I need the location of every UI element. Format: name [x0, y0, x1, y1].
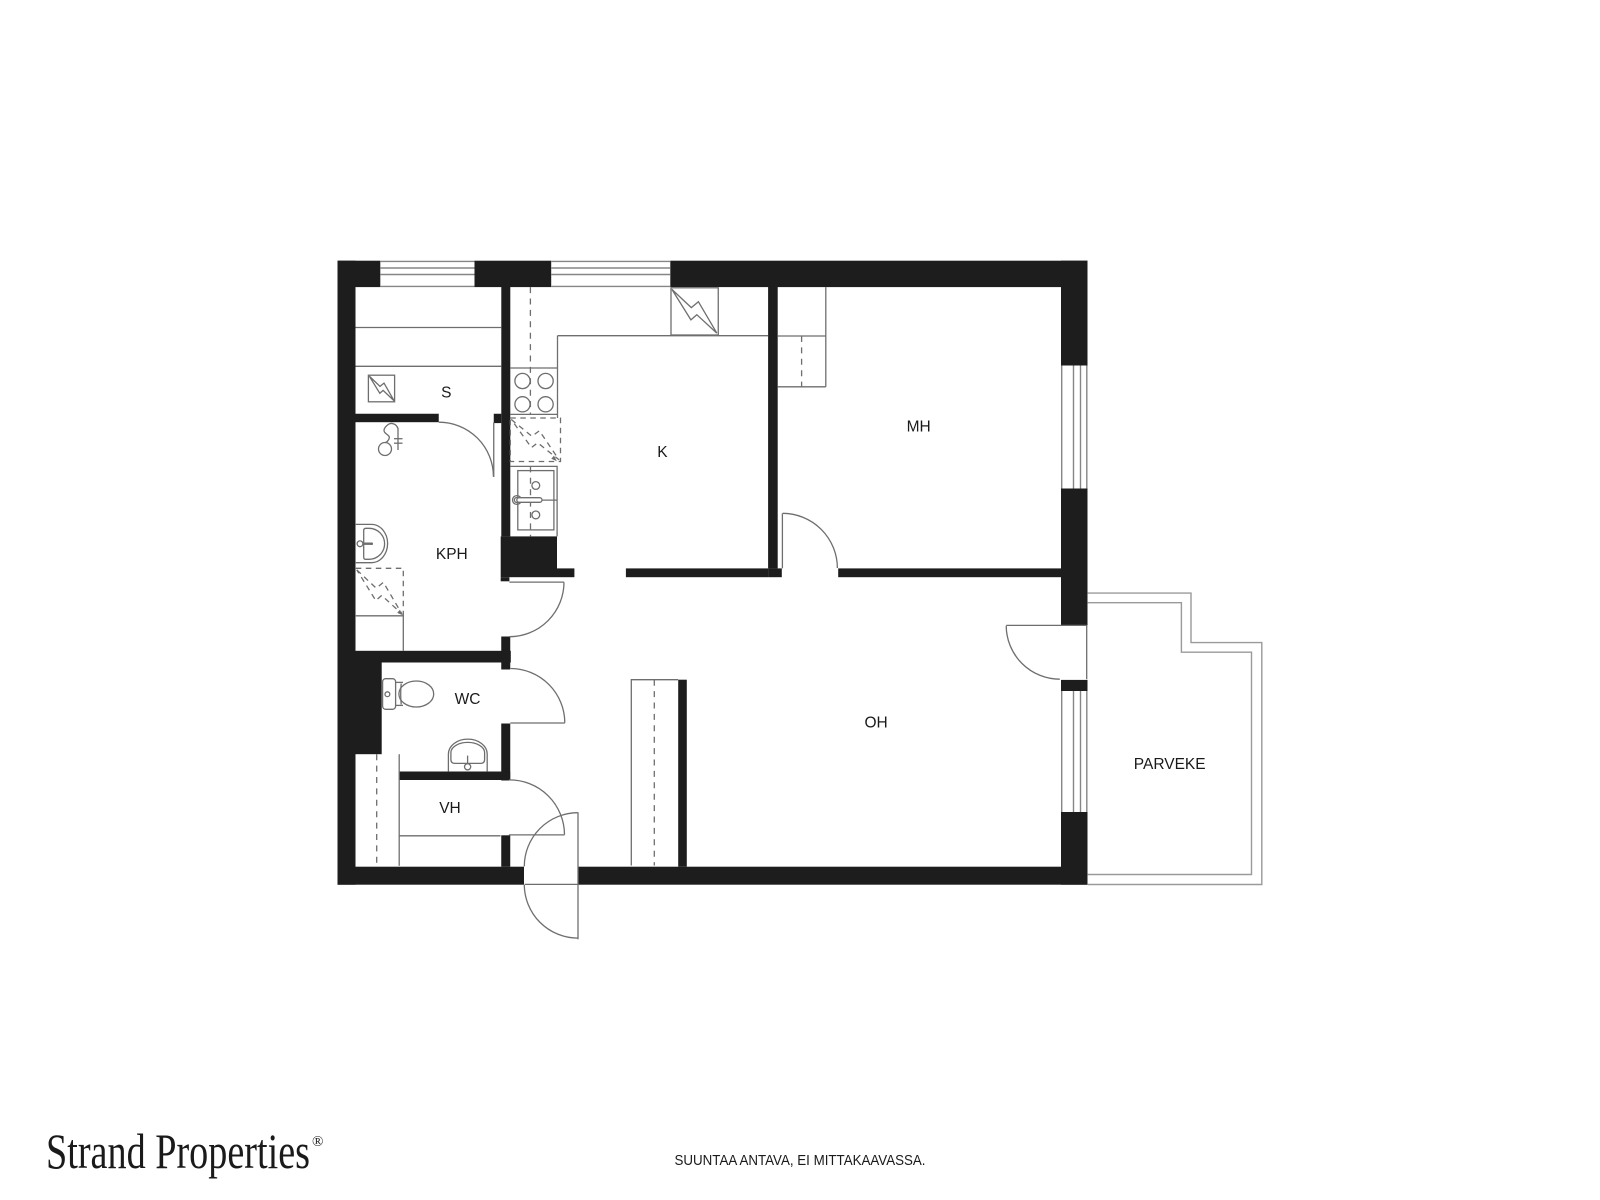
svg-text:Strand Properties: Strand Properties — [46, 1123, 310, 1179]
svg-text:WC: WC — [455, 691, 481, 708]
svg-text:SUUNTAA ANTAVA, EI MITTAKAAVAS: SUUNTAA ANTAVA, EI MITTAKAAVASSA. — [675, 1152, 926, 1169]
svg-text:KPH: KPH — [436, 546, 468, 563]
svg-text:®: ® — [312, 1134, 323, 1150]
svg-text:MH: MH — [907, 419, 931, 436]
svg-text:PARVEKE: PARVEKE — [1134, 756, 1206, 773]
svg-text:OH: OH — [864, 714, 887, 731]
svg-text:S: S — [441, 384, 451, 401]
svg-text:K: K — [657, 444, 668, 461]
svg-text:VH: VH — [439, 800, 461, 817]
